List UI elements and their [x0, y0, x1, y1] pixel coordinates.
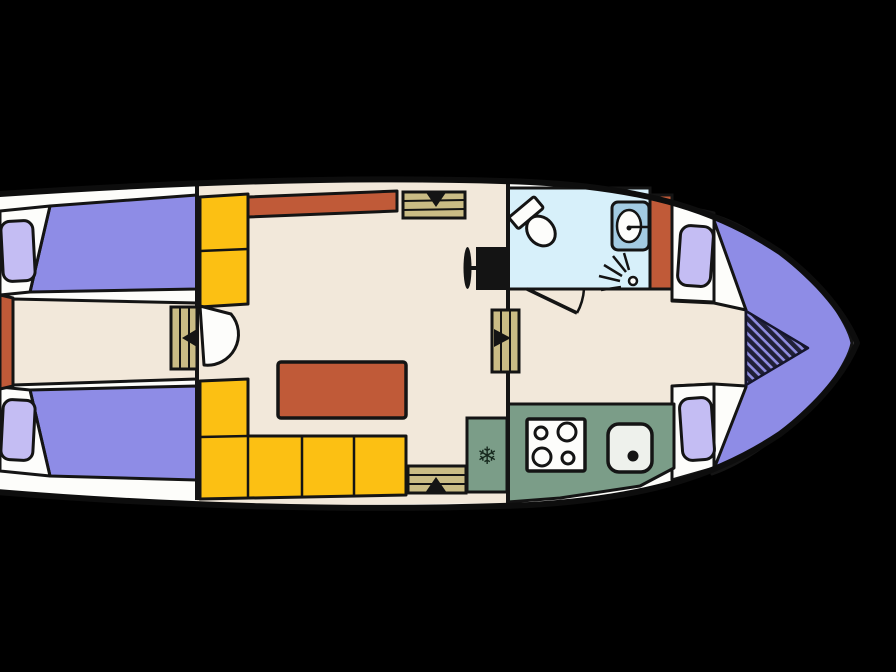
snowflake-icon: ❄ — [477, 442, 497, 470]
side-bench-port — [200, 194, 248, 307]
corridor-steps — [492, 310, 519, 372]
saloon: ❄ — [197, 181, 508, 507]
sink-basin — [608, 424, 652, 472]
floorplan-svg: ❄ — [0, 0, 896, 672]
dining-table — [278, 362, 406, 418]
washbasin-icon — [612, 202, 649, 250]
sideboard-counter — [248, 191, 397, 217]
bow-pillow-starboard — [679, 397, 715, 461]
aft-pillow-port — [0, 220, 35, 282]
helm-console — [476, 247, 508, 290]
aft-berth-starboard — [30, 386, 197, 480]
galley-sink-icon — [608, 424, 652, 472]
bow-berth-port-head — [672, 204, 714, 302]
step-seam — [403, 209, 465, 210]
aft-berth-port — [30, 195, 197, 292]
locker-cabinet — [648, 195, 672, 289]
boat-floorplan-canvas: ❄ — [0, 0, 896, 672]
stove-icon — [527, 419, 585, 471]
aft-cabin-steps — [171, 307, 197, 369]
entry-steps-starboard — [408, 466, 466, 493]
sofa-seam — [200, 436, 248, 437]
stern-locker — [0, 295, 13, 389]
helm-station — [464, 247, 509, 290]
fridge: ❄ — [467, 418, 507, 492]
aft-cabin — [0, 195, 197, 480]
bow-pillow-port — [677, 225, 714, 287]
sink-drain — [628, 451, 639, 462]
aft-cabin-aisle — [13, 299, 197, 385]
bow-berth-starboard-head — [672, 384, 715, 480]
entry-steps-port — [403, 191, 465, 218]
shower-head — [629, 277, 637, 285]
aft-pillow-starboard — [0, 399, 35, 461]
